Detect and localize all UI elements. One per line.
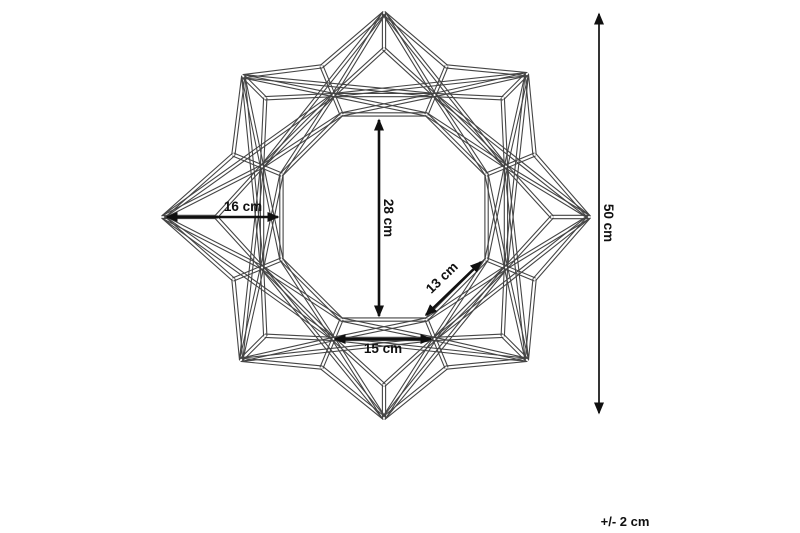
wire-segment	[447, 362, 528, 370]
diagram-canvas: 16 cm 28 cm 13 cm 15 cm 50 cm +/- 2 cm	[0, 0, 800, 533]
wire-segment	[446, 68, 527, 76]
wire-segment	[433, 340, 445, 369]
wire-segment	[446, 358, 527, 366]
wire-segment	[525, 74, 533, 155]
mirror-dimension-diagram: 16 cm 28 cm 13 cm 15 cm 50 cm +/- 2 cm	[0, 0, 800, 533]
wire-segment	[241, 358, 321, 366]
wire-segment	[533, 216, 588, 278]
wire-segment	[529, 280, 537, 361]
dimension-label-16cm: 16 cm	[224, 199, 262, 214]
dimension-label-13cm: 13 cm	[423, 259, 461, 296]
wire-segment	[323, 340, 335, 369]
dimension-label-50cm: 50 cm	[601, 204, 616, 242]
wire-segment	[385, 12, 447, 65]
wire-segment	[447, 65, 528, 73]
wire-segment	[335, 14, 386, 96]
wire-segment	[265, 97, 333, 100]
wire-segment	[434, 97, 502, 100]
wire-segment	[264, 98, 267, 166]
wire-segment	[264, 267, 267, 335]
wire-segment	[235, 279, 243, 360]
wire-segment	[529, 74, 537, 155]
wire-segment	[428, 113, 488, 173]
wire-segment	[244, 75, 334, 94]
wire-segment	[505, 168, 551, 219]
wire-segment	[501, 98, 504, 166]
mirror-wireframe	[162, 12, 590, 420]
wire-segment	[162, 94, 333, 216]
wire-segment	[436, 218, 591, 340]
tolerance-label: +/- 2 cm	[601, 514, 650, 529]
wire-segment	[232, 280, 240, 361]
wire-segment	[434, 334, 502, 337]
wire-segment	[321, 12, 383, 65]
wire-segment	[505, 168, 588, 219]
wire-segment	[280, 261, 340, 321]
wire-segment	[265, 334, 333, 337]
wire-segment	[505, 216, 551, 267]
wire-segment	[261, 12, 383, 166]
wire-segment	[335, 94, 343, 113]
wire-segment	[436, 94, 591, 216]
dimension-label-28cm: 28 cm	[381, 199, 396, 237]
wire-segment	[280, 113, 340, 173]
wire-segment	[242, 77, 261, 167]
wire-segment	[525, 279, 533, 360]
wire-segment	[164, 216, 263, 267]
wire-segment	[501, 267, 504, 335]
wire-segment	[241, 362, 322, 370]
wire-segment	[162, 219, 261, 270]
dimension-label-15cm: 15 cm	[364, 341, 402, 356]
